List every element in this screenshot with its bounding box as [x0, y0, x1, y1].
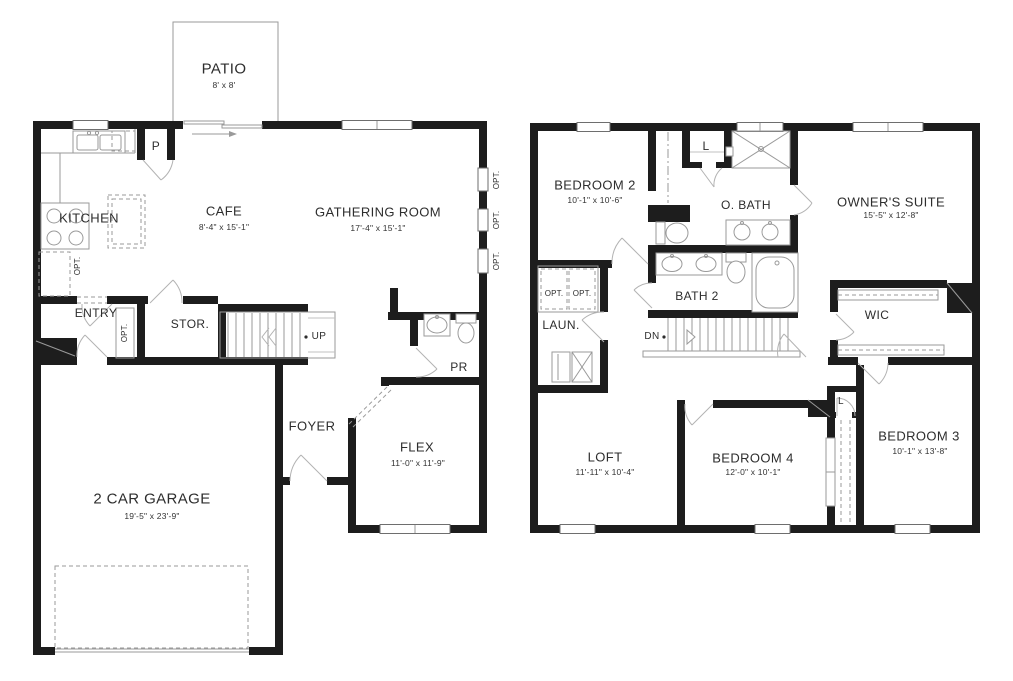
owners-suite-label: OWNER'S SUITE [837, 196, 945, 209]
loft-dims: 11'-11" x 10'-4" [576, 468, 635, 477]
pr-toilet [456, 314, 476, 343]
pantry-label: P [152, 140, 160, 152]
wic-rods [838, 290, 944, 355]
flex-dims: 11'-0" x 11'-9" [391, 459, 445, 468]
laundry-label: LAUN. [542, 319, 579, 331]
owners-bath-label: O. BATH [721, 199, 771, 211]
opt-dryer-label: OPT. [573, 290, 592, 298]
bedroom2-label: BEDROOM 2 [554, 179, 636, 192]
garage-label: 2 CAR GARAGE [93, 492, 210, 507]
bedroom3-dims: 10'-1" x 13'-8" [892, 447, 947, 456]
pr-sink [424, 314, 450, 336]
opt-window3-label: OPT. [493, 252, 501, 271]
powder-room-label: PR [450, 361, 467, 373]
wic-label: WIC [865, 309, 890, 321]
obath-toilet [656, 222, 688, 244]
opt-window-3 [478, 249, 488, 273]
bedroom3-label: BEDROOM 3 [878, 430, 960, 443]
obath-vanity [726, 220, 790, 245]
first-floor-plan [33, 22, 488, 656]
entry-label: ENTRY [75, 307, 117, 319]
cafe-label: CAFE [206, 205, 242, 218]
stairs-up-label: UP [312, 332, 327, 342]
opt-fridge-label: OPT. [74, 257, 82, 276]
floorplan-page: PATIO 8' x 8' KITCHEN P CAFE 8'-4" x 15'… [0, 0, 1013, 681]
storage-label: STOR. [171, 318, 209, 330]
bedroom4-dims: 12'-0" x 10'-1" [725, 468, 780, 477]
opt-window2-label: OPT. [493, 211, 501, 230]
bedroom2-window [577, 123, 610, 132]
bedroom3-window [895, 525, 930, 534]
gathering-room-dims: 17'-4" x 15'-1" [350, 224, 405, 233]
opt-window-2 [478, 209, 488, 231]
linen1-label: L [702, 140, 709, 152]
bath2-label: BATH 2 [675, 290, 719, 302]
kitchen-label: KITCHEN [59, 212, 119, 225]
floorplan-drawing [0, 0, 1013, 681]
bedroom4-window [755, 525, 790, 534]
opt-window-1 [478, 168, 488, 191]
garage-dims: 19'-5" x 23'-9" [124, 512, 179, 521]
kitchen-sink [73, 131, 125, 153]
stairs-dn-label: DN [644, 332, 659, 342]
foyer-label: FOYER [289, 420, 336, 433]
shower [726, 131, 790, 168]
bath2-vanity [656, 253, 722, 275]
patio-label: PATIO [202, 62, 247, 77]
loft-window [560, 525, 595, 534]
patio-dims: 8' x 8' [212, 81, 235, 90]
linen2-label: L [838, 397, 844, 407]
flex-label: FLEX [400, 441, 434, 454]
cafe-dims: 8'-4" x 15'-1" [199, 223, 249, 232]
bath2-toilet [726, 253, 746, 283]
owners-suite-dims: 15'-5" x 12'-8" [863, 211, 918, 220]
opt-entry-closet-label: OPT. [121, 324, 129, 343]
opt-washer-label: OPT. [545, 290, 564, 298]
laundry-tub [552, 352, 592, 382]
loft-label: LOFT [588, 451, 623, 464]
kitchen-window [73, 121, 108, 130]
garage-door [55, 566, 249, 656]
stairs-down [643, 318, 800, 357]
bathtub [752, 253, 798, 312]
opt-window1-label: OPT. [493, 171, 501, 190]
opt-fridge-box [39, 252, 70, 296]
bedroom2-dims: 10'-1" x 10'-6" [567, 196, 622, 205]
bedroom4-label: BEDROOM 4 [712, 452, 794, 465]
gathering-room-label: GATHERING ROOM [315, 206, 441, 219]
